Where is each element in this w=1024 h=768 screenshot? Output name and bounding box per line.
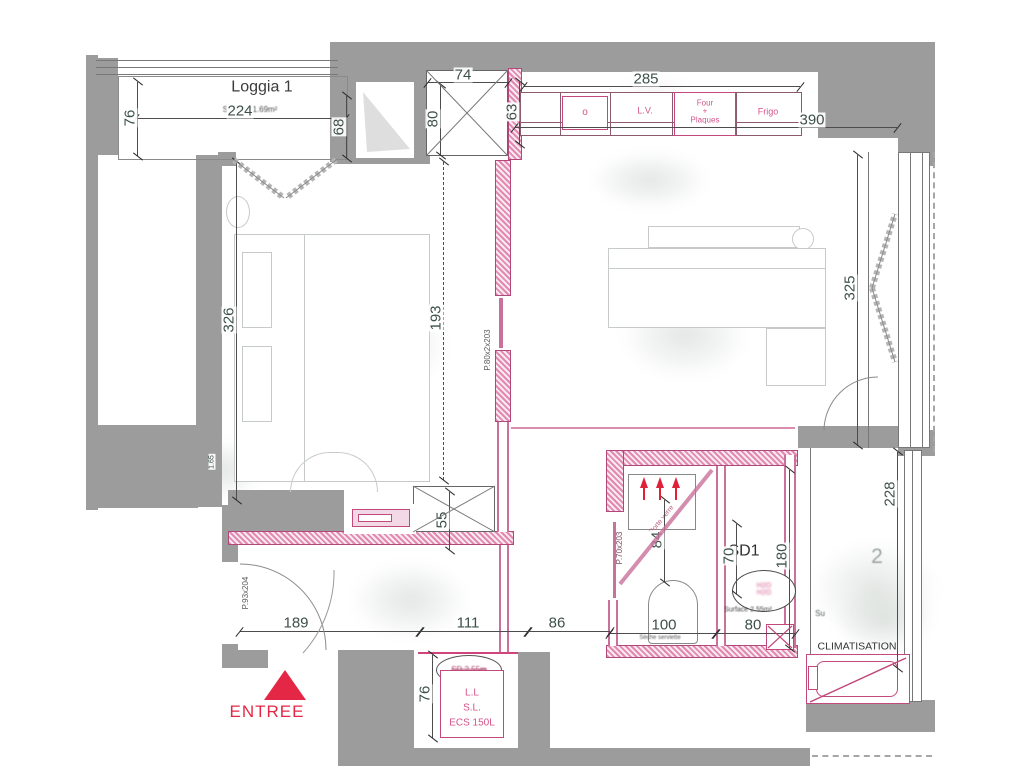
- bubble-text: H2OH2O: [757, 583, 771, 598]
- wall-loggia1-left: [96, 58, 118, 155]
- entry-door-arc: [240, 564, 326, 650]
- kitchen-separator: [736, 92, 737, 136]
- kitchen-separator: [560, 92, 561, 136]
- dim-kitchen-l: 63: [505, 103, 520, 122]
- dim-line: [528, 631, 610, 632]
- living-window-frame: [898, 152, 930, 448]
- dim-kitchen-w: 285: [632, 72, 659, 87]
- dim-loggia-h: 76: [123, 109, 138, 128]
- loggia2-window-glass: [912, 450, 913, 702]
- loggia2-dashed-line: [812, 755, 932, 757]
- window-chevrons-line: [872, 214, 895, 362]
- wall-closet-right-arm: [518, 652, 550, 750]
- dim-line: [240, 631, 420, 632]
- dim-hall-w: 189: [282, 616, 309, 631]
- loggia1-glazing-line: [96, 74, 338, 75]
- dim-corridor-h: 193: [429, 304, 444, 331]
- bathroom-door-label: P.70x203: [616, 532, 624, 565]
- loggia1-glazing-line: [96, 60, 338, 61]
- pillow: [242, 252, 272, 328]
- kitchen-sink-label: o: [582, 108, 588, 119]
- dim-loggia-w: 224: [226, 104, 253, 119]
- dim-bedroom-h: 326: [222, 306, 237, 333]
- window-chevrons: [872, 214, 895, 362]
- towel-dryer-label: Sèche serviette: [639, 635, 680, 641]
- entry-door-label: P.93x204: [242, 577, 250, 610]
- dim-loggia-r: 68: [332, 118, 347, 137]
- kitchen-dishwasher-label: L.V.: [637, 106, 652, 115]
- partition-central-top: [495, 160, 511, 296]
- bathroom-surface: Surface 2.55m²: [724, 606, 772, 613]
- dim-niche: 1.65: [209, 454, 216, 470]
- loggia2-partial-label: 2: [871, 546, 883, 568]
- partition-bath-left-arm: [606, 450, 624, 512]
- sofa-back-line: [608, 268, 826, 269]
- dim-line: [524, 86, 800, 87]
- floor-plan: o L.V. Four+Plaques Frigo H2OH2O SD1 Sur…: [0, 0, 1024, 768]
- dim-line: [515, 127, 897, 128]
- smudge: [350, 560, 470, 640]
- wall-hall-right: [499, 545, 509, 652]
- ceiling-light: [226, 196, 250, 228]
- loggia1-glazing-line: [96, 67, 338, 68]
- dim-bath-h: 180: [775, 542, 790, 569]
- sofa-chaise: [766, 328, 826, 386]
- partition-bath-top: [606, 450, 798, 466]
- living-floor-line: [511, 427, 795, 429]
- hall-closet: [413, 486, 495, 532]
- entry-label: ENTREE: [230, 703, 305, 721]
- dim-window-h: 325: [843, 274, 858, 301]
- bedroom-door-label: P.80x2x203: [484, 329, 492, 370]
- radiator-inner: [358, 514, 392, 522]
- loggia-door-leaves: [234, 160, 336, 198]
- dim-ecs-h: 76: [418, 685, 433, 704]
- dim-wc-w: 100: [650, 618, 677, 633]
- wall-bedroom-bottom-block: [228, 490, 344, 532]
- window-recess: [356, 82, 414, 158]
- dim-hall-w3: 86: [548, 616, 567, 631]
- wall-loggia2-bottom: [806, 700, 935, 732]
- facade-dashed-line: [933, 152, 935, 452]
- dim-loggia2-h: 228: [883, 480, 898, 507]
- dim-shaft-h: 80: [426, 110, 441, 129]
- entry-triangle: [264, 670, 306, 700]
- ac-unit-inner: [816, 661, 898, 697]
- kitchen-fridge-label: Frigo: [758, 107, 779, 116]
- loggia2-surface-hint: Su: [815, 610, 825, 618]
- kitchen-separator: [610, 92, 611, 136]
- dim-closet-d: 55: [435, 511, 450, 530]
- dim-shower: 84: [650, 531, 665, 550]
- door-leaf-bedroom: [499, 298, 503, 348]
- partition-central-mid: [495, 350, 511, 422]
- dim-hall-w2: 111: [456, 616, 481, 631]
- wall-closet-left-arm: [338, 650, 414, 750]
- wall-entry-left-bottom: [222, 644, 238, 668]
- stool: [792, 228, 814, 250]
- wall-bath-left-lower: [608, 600, 618, 646]
- sofa-body: [608, 248, 826, 328]
- wall-topright-chunk: [818, 42, 935, 138]
- dim-basin-w2: 80: [744, 618, 763, 633]
- loggia1-label: Loggia 1: [231, 80, 292, 97]
- kitchen-oven-label: Four+Plaques: [691, 99, 720, 124]
- wall-top-band: [420, 42, 830, 72]
- living-door-arc: [824, 377, 878, 430]
- console-table: [648, 226, 800, 248]
- ecs-box-labels: L.LS.L.ECS 150L: [449, 686, 495, 731]
- wall-bottom-band: [338, 748, 810, 766]
- dim-basin: 70: [722, 547, 737, 566]
- climatisation-label: CLIMATISATION: [818, 641, 897, 652]
- dim-kitchen-total: 390: [798, 113, 825, 128]
- living-window-glass: [910, 152, 911, 448]
- kitchen-separator: [672, 92, 673, 136]
- living-window-glass: [922, 152, 923, 448]
- ac-unit-side: [808, 666, 818, 690]
- wall-central-lower: [497, 422, 509, 532]
- pillow: [242, 346, 272, 422]
- dim-shaft-w: 74: [454, 68, 473, 83]
- wall-bottomleft-chunk: [86, 425, 198, 508]
- hall-door-arc: [303, 570, 334, 653]
- loggia-door-leaves-line: [234, 160, 336, 198]
- smudge: [590, 150, 710, 210]
- bed-fold-line: [304, 234, 305, 482]
- living-wall-line: [868, 152, 869, 448]
- wall-midright-band: [798, 426, 900, 448]
